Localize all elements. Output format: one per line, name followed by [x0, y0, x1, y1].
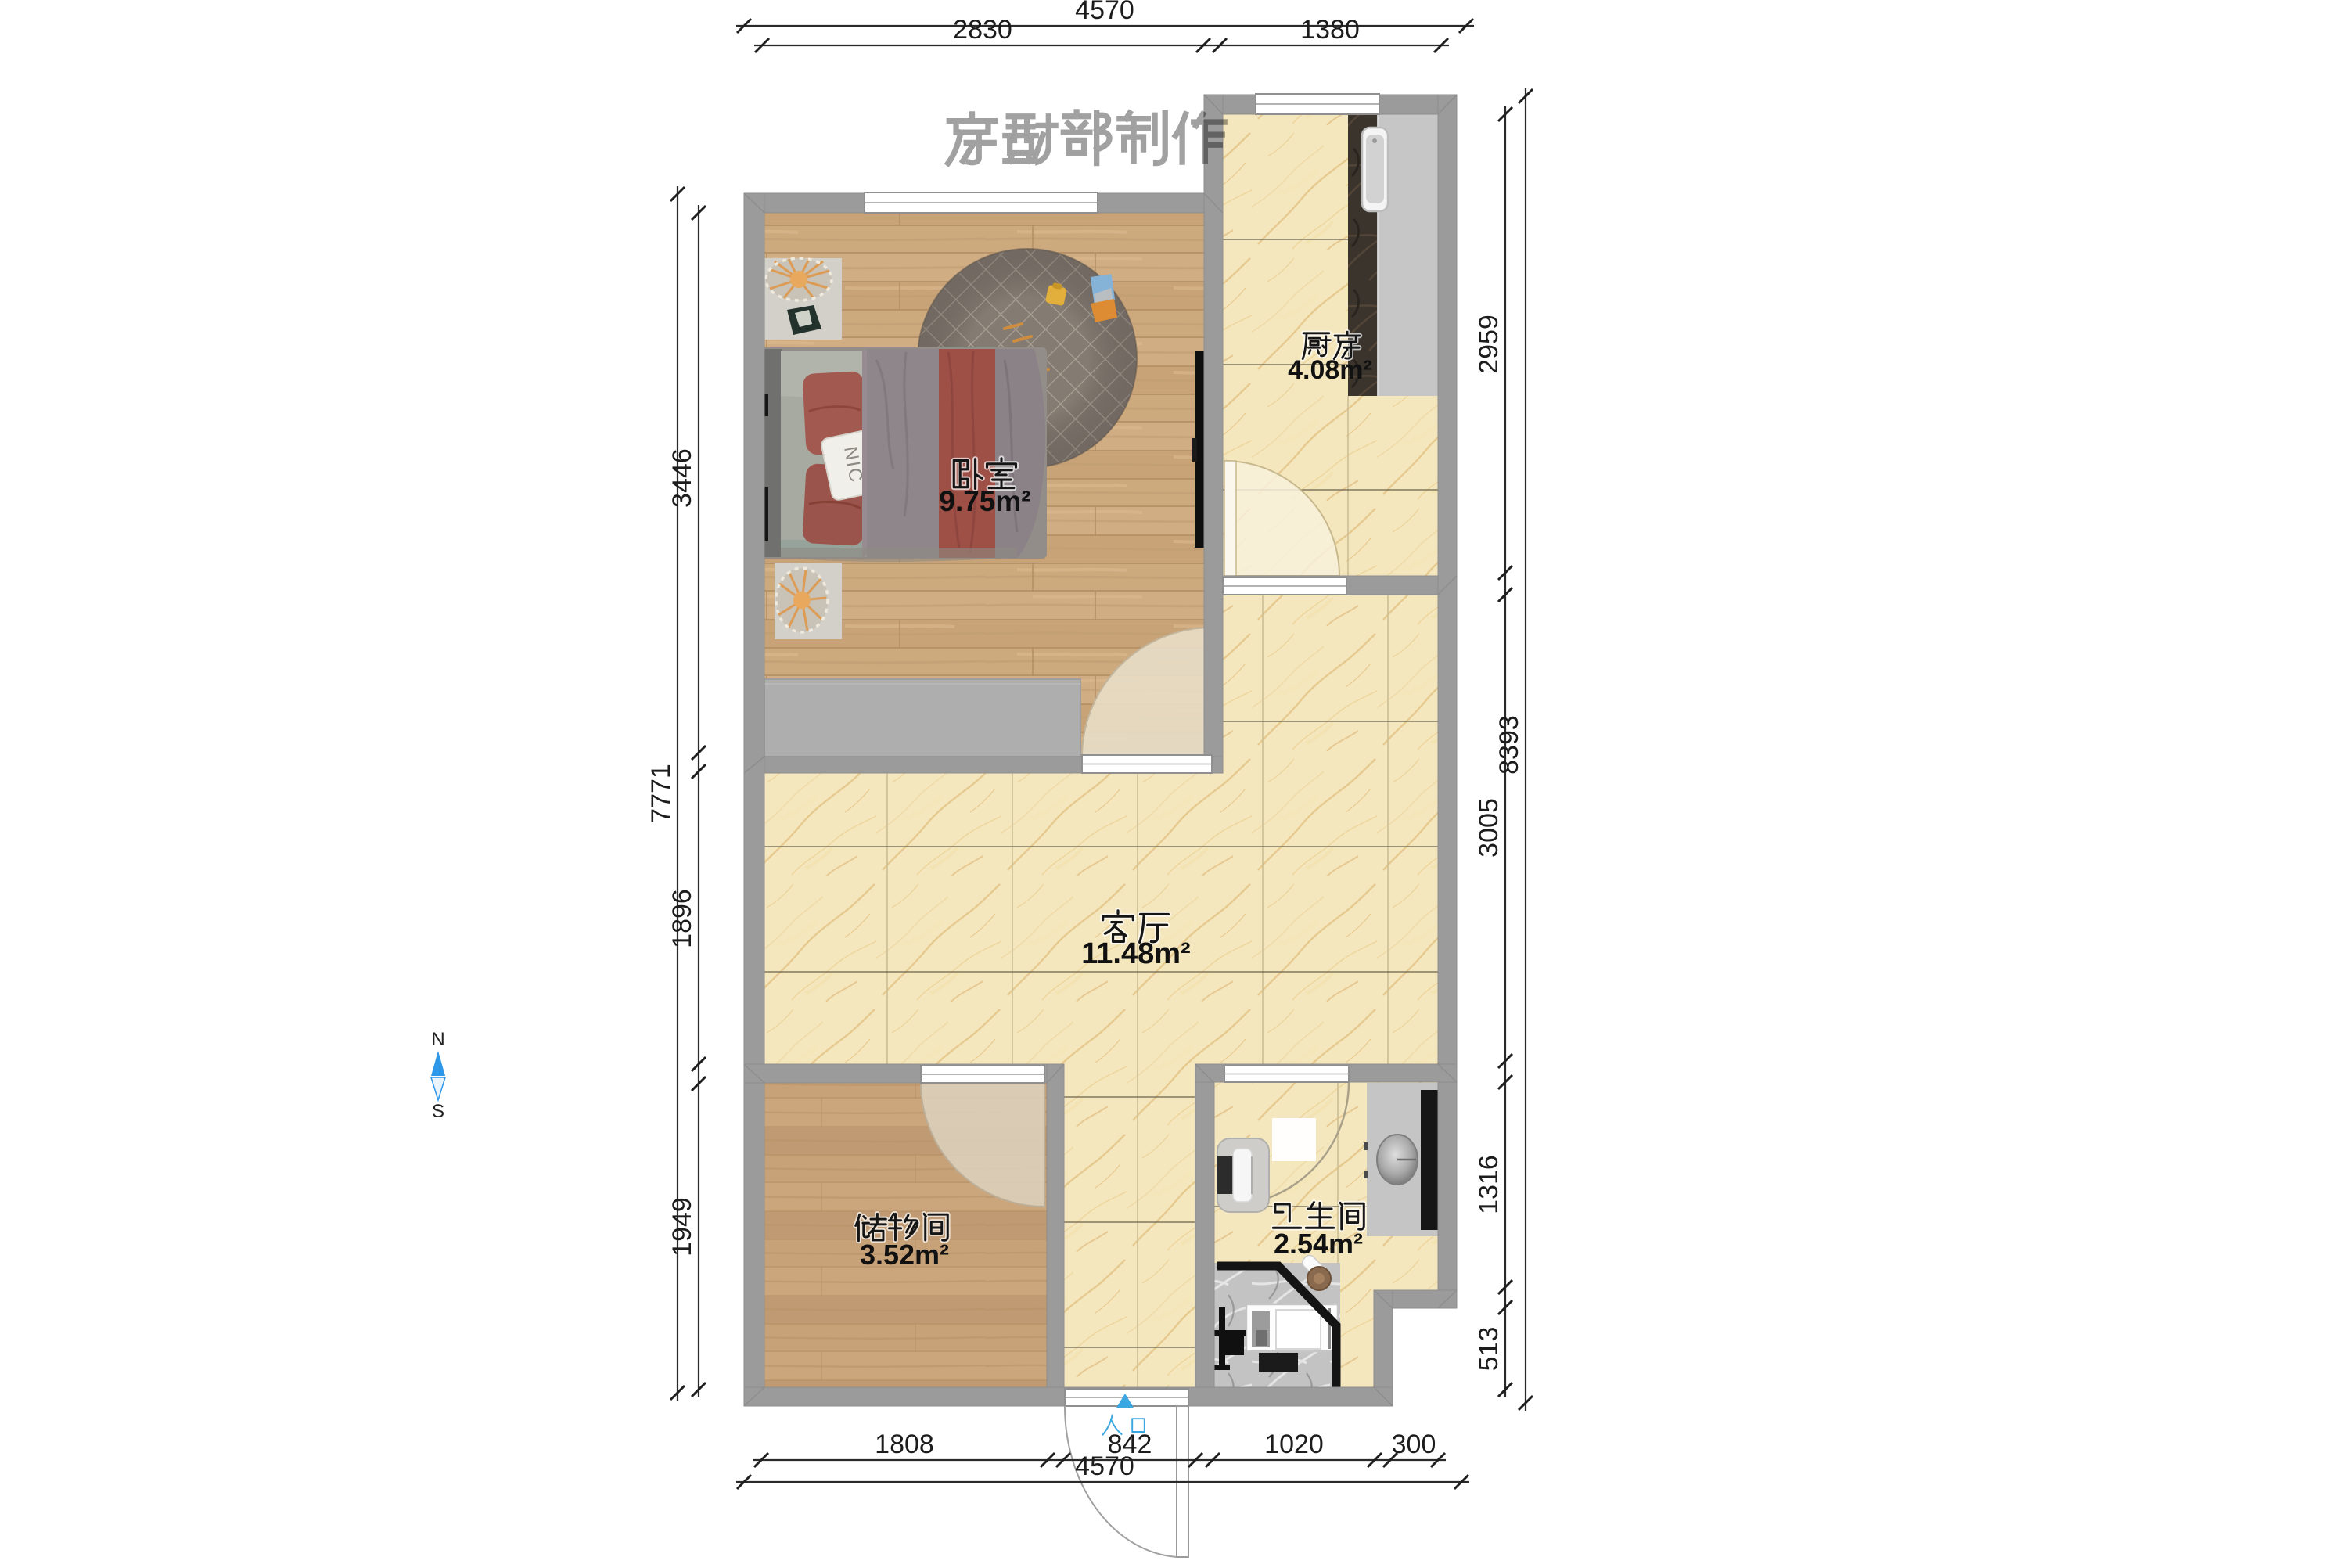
- svg-text:9.75m²: 9.75m²: [939, 485, 1030, 517]
- svg-text:513: 513: [1474, 1327, 1504, 1372]
- svg-text:8393: 8393: [1494, 715, 1524, 775]
- svg-text:1380: 1380: [1300, 15, 1360, 45]
- svg-text:7771: 7771: [646, 764, 676, 823]
- svg-text:1020: 1020: [1264, 1430, 1324, 1459]
- svg-text:1808: 1808: [875, 1430, 934, 1459]
- svg-text:1896: 1896: [667, 889, 697, 948]
- svg-text:11.48m²: 11.48m²: [1081, 937, 1190, 970]
- svg-text:2959: 2959: [1474, 315, 1504, 374]
- svg-text:1316: 1316: [1474, 1155, 1504, 1214]
- svg-text:3446: 3446: [667, 448, 697, 508]
- svg-text:4.08m²: 4.08m²: [1288, 355, 1372, 385]
- svg-text:300: 300: [1392, 1430, 1436, 1459]
- svg-text:4570: 4570: [1075, 1451, 1134, 1481]
- svg-text:3.52m²: 3.52m²: [860, 1239, 949, 1271]
- svg-text:2.54m²: 2.54m²: [1274, 1228, 1363, 1260]
- svg-text:2830: 2830: [953, 15, 1012, 45]
- svg-text:3005: 3005: [1474, 798, 1504, 858]
- svg-text:1949: 1949: [667, 1197, 697, 1257]
- svg-text:S: S: [432, 1101, 444, 1122]
- svg-text:4570: 4570: [1075, 0, 1134, 25]
- svg-text:N: N: [431, 1029, 444, 1050]
